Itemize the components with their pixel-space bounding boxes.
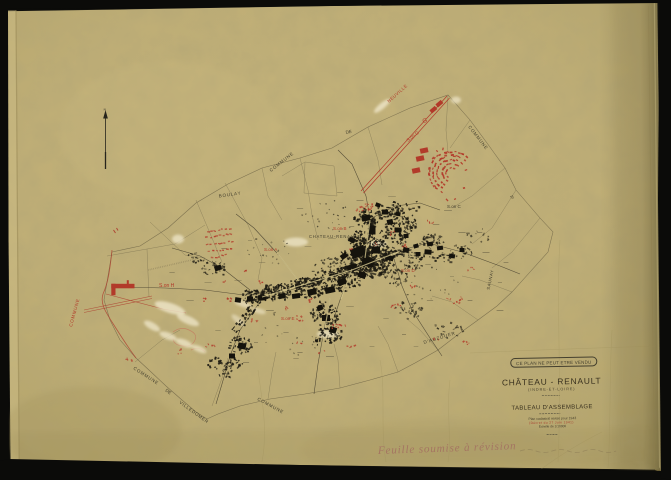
- svg-text:N: N: [104, 108, 106, 112]
- svg-text:S.on A: S.on A: [264, 247, 277, 252]
- svg-text:S.on D: S.on D: [401, 268, 416, 273]
- svg-text:S.on E: S.on E: [281, 316, 295, 321]
- svg-text:Échelle de 1/10000: Échelle de 1/10000: [539, 423, 567, 429]
- svg-text:CHÂTEAU - RENAULT: CHÂTEAU - RENAULT: [502, 376, 602, 388]
- svg-text:S.on B: S.on B: [333, 226, 347, 231]
- svg-text:S.on C: S.on C: [447, 204, 462, 209]
- svg-text:S.on H: S.on H: [159, 283, 175, 289]
